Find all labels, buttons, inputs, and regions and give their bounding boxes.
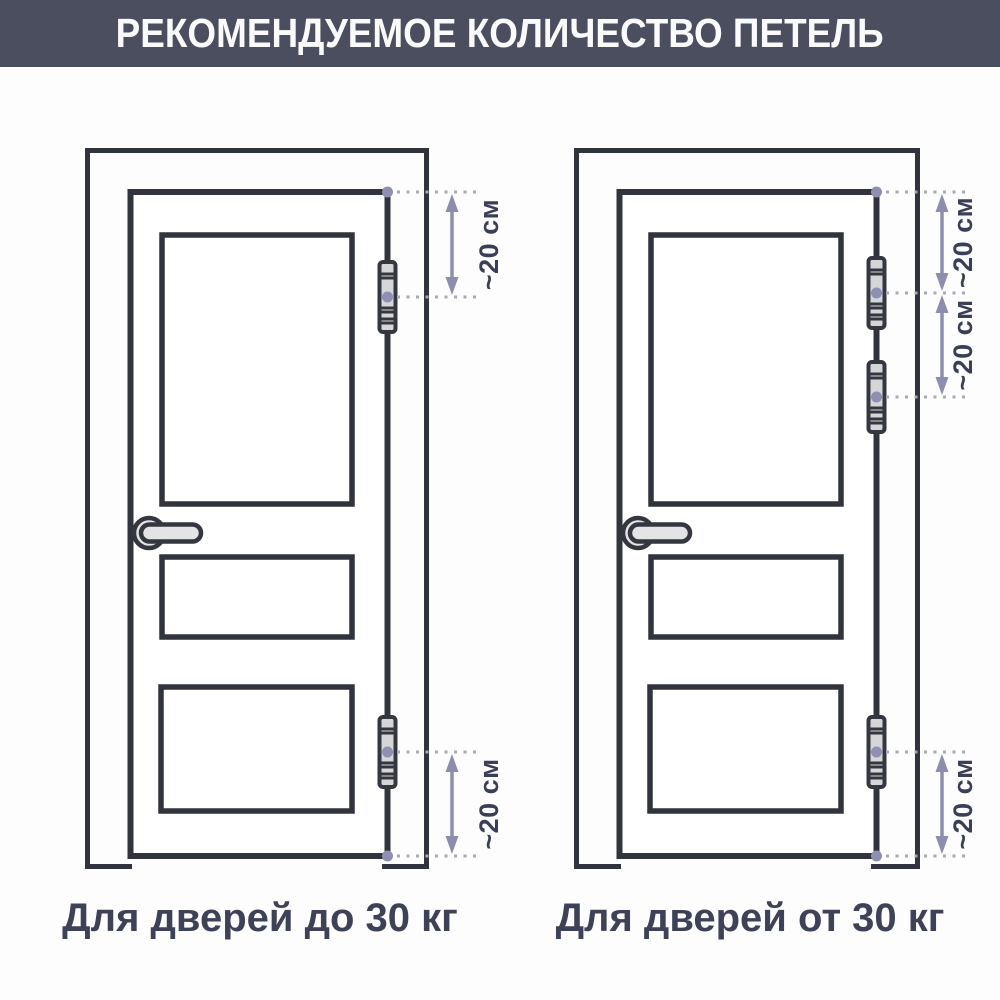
door-handle [623, 518, 690, 548]
dimension-arrow-top: ~20 см [446, 194, 505, 295]
dimension-label: ~20 см [948, 758, 978, 849]
dimension-label: ~20 см [474, 199, 504, 290]
door-panel-bottom [161, 687, 352, 811]
door-panel-middle [162, 557, 352, 637]
caption-heavy-door: Для дверей от 30 кг [545, 896, 955, 941]
door-diagrams: ~20 см ~20 см [0, 0, 1000, 1000]
dimension-label: ~20 см [948, 299, 978, 390]
door-panel-top [651, 235, 841, 504]
hinge-infographic: РЕКОМЕНДУЕМОЕ КОЛИЧЕСТВО ПЕТЕЛЬ [0, 0, 1000, 1000]
dimension-guides [388, 192, 479, 856]
caption-light-door: Для дверей до 30 кг [60, 896, 460, 941]
door-diagram-heavy: ~20 см ~20 см ~20 см [574, 151, 978, 870]
dimension-arrow-top: ~20 см [936, 194, 979, 291]
dimension-arrow-bottom: ~20 см [446, 754, 505, 854]
dimension-arrow-bottom: ~20 см [936, 754, 979, 854]
door-panel-top [162, 235, 352, 504]
dimension-arrow-middle: ~20 см [936, 295, 979, 395]
door-handle [134, 518, 201, 548]
door-panel-middle [651, 557, 841, 637]
door-diagram-light: ~20 см ~20 см [85, 151, 504, 870]
dimension-label: ~20 см [948, 197, 978, 288]
door-panel-bottom [650, 687, 841, 811]
dimension-guides [877, 192, 969, 856]
dimension-label: ~20 см [474, 758, 504, 849]
